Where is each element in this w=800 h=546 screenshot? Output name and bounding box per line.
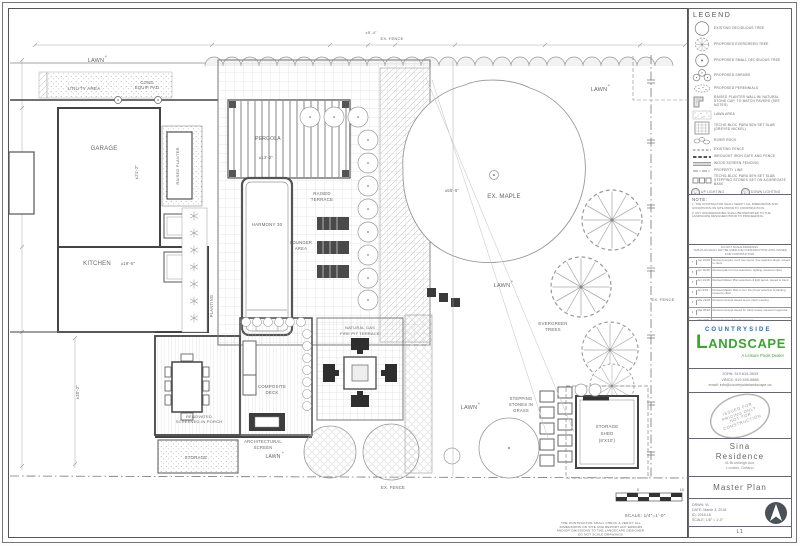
lighting-label: UP LIGHTING — [701, 191, 724, 195]
plan-label: ±13'-2" — [259, 155, 274, 160]
legend-item: WOOD SCREEN FENCING — [691, 161, 789, 167]
planting-bed — [182, 208, 207, 332]
plan-label: ±19'-5" — [121, 261, 136, 266]
legend-title: LEGEND — [693, 12, 789, 19]
plan-label: ±5'-4" — [365, 30, 377, 35]
plan-label: UTILITY AREA — [68, 86, 102, 91]
title-block-panel: LEGEND EXISTING DECIDUOUS TREEPROPOSED E… — [688, 8, 792, 538]
drawing-info-line: SCALE: 1/8" = 1'-0" — [692, 518, 726, 523]
plan-label: ±21'-2" — [134, 165, 139, 180]
light-symbol-icon: U — [691, 188, 700, 195]
plan-label: COMPOSITE — [258, 384, 286, 389]
plan-label: + — [282, 450, 285, 455]
legend-section: LEGEND EXISTING DECIDUOUS TREEPROPOSED E… — [689, 9, 791, 195]
client-address: 41 Bromleigh Ave,London, Ontario — [689, 461, 791, 471]
plan-label: LAWN — [265, 454, 280, 460]
address-line: London, Ontario — [689, 466, 791, 471]
legend-item: PROPOSED SMALL DECIDUOUS TREE — [691, 53, 789, 68]
contact-line: email: info@countrysidelandscape.ca — [689, 383, 791, 389]
plan-label: + — [511, 279, 514, 284]
revision-description: Revised concept issued as per client mee… — [712, 298, 791, 307]
legend-item: WROUGHT IRON GATE AND FENCE — [691, 154, 789, 160]
garage — [58, 108, 160, 247]
revision-row: 5Apr 13/18Revised Master Plan selections… — [689, 278, 791, 288]
legend-item: EXISTING FENCE — [691, 147, 789, 153]
revision-description: Revised plan for tree selections, lighti… — [712, 268, 791, 277]
note-lines: 1. THE CONTRACTOR SHALL VERIFY ALL DIMEN… — [692, 203, 788, 219]
shrubs-icon — [691, 69, 712, 82]
plan-label: 5 — [637, 488, 639, 492]
planter-wall-icon — [691, 95, 712, 109]
revision-date: Mar 20/18 — [697, 308, 712, 317]
site-plan-drawing: LAWN+UTILITY AREACONDEQUIP PADGARAGE±21'… — [8, 8, 688, 538]
note-line: 1. THE CONTRACTOR SHALL VERIFY ALL DIMEN… — [692, 203, 788, 211]
plan-label: STORAGE — [596, 424, 619, 429]
client-name-line2: Residence — [689, 452, 791, 462]
plan-label: RAISED PLANTER — [175, 147, 180, 184]
plan-label: ARCHITECTURAL — [244, 439, 282, 444]
lighting-legend-item: DDOWN LIGHTING — [741, 188, 789, 195]
river-rock-icon — [691, 136, 712, 146]
lighting-legend: UUP LIGHTINGDDOWN LIGHTINGSSTEP LIGHTING… — [691, 188, 789, 195]
revision-date: Mar 21/18 — [697, 298, 712, 307]
legend-items: EXISTING DECIDUOUS TREEPROPOSED EVERGREE… — [691, 21, 789, 186]
revision-date: Jun 20/18 — [697, 258, 712, 267]
plan-label: TERRACE — [311, 197, 333, 202]
plan-label: 10 — [680, 488, 685, 492]
revisions-section: DO NOT SCALE DRAWINGS.THIS PLAN SHALL NO… — [689, 245, 791, 321]
plan-label: EX. FENCE — [652, 297, 675, 302]
plan-label: FIRE PIT TERRACE — [340, 331, 380, 336]
plan-label: SHED — [601, 431, 614, 436]
legend-item: PROPOSED SHRUBS — [691, 69, 789, 82]
drawing-info-section: DRWN: VLDATE: March 3, 2018ID: 2018-18SC… — [689, 499, 791, 527]
contact-section: JOHN: 519 619-3633VINCE: 519 495-5888ema… — [689, 369, 791, 393]
revision-description: Revised concept issued for client review… — [712, 308, 791, 317]
plan-label: LAWN — [591, 87, 608, 93]
legend-item-label: RIVER ROCK — [714, 139, 737, 143]
revision-header: DO NOT SCALE DRAWINGS.THIS PLAN SHALL NO… — [689, 245, 791, 258]
legend-item-label: RAISED PLANTER WALL W/ NATURAL STONE CAP… — [714, 96, 789, 107]
plan-label: AREA — [295, 246, 307, 251]
legend-item: RIVER ROCK — [691, 136, 789, 146]
revision-row: 4Apr 9/18Revised Master Plan to incl. fi… — [689, 288, 791, 298]
plan-label: LAWN — [88, 58, 105, 64]
legend-item-label: PROPOSED PERENNIALS — [714, 87, 758, 91]
plan-label: DECK — [266, 390, 279, 395]
shrub-mass — [304, 426, 356, 478]
line-dashdot-icon — [691, 168, 712, 174]
revision-row: 2Mar 20/18Revised concept issued for cli… — [689, 308, 791, 318]
revision-description: Revised pergola, rev'd tree layout, tree… — [712, 258, 791, 267]
sheet-title: Master Plan — [713, 483, 767, 492]
revision-date: Apr 16/18 — [697, 268, 712, 277]
dining-table — [172, 362, 202, 412]
plan-label: ±30'-2" — [75, 385, 80, 400]
plan-label: GRASS — [513, 408, 529, 413]
revision-header-line: THIS PLAN SHALL NOT BE USED FOR CONSTRUC… — [691, 249, 789, 256]
legend-item-label: TECHO-BLOC PARA 50% SET SLAB STEPPING ST… — [714, 175, 789, 186]
legend-item-label: TECHO-BLOC PARA 50% SET SLAB (GREYED NIC… — [714, 124, 789, 132]
legend-item: TECHO-BLOC PARA 50% SET SLAB (GREYED NIC… — [691, 121, 789, 135]
pool-harmony — [242, 178, 292, 335]
plan-label: LOUNGER — [290, 240, 312, 245]
plan-label: STEPPING — [510, 396, 533, 401]
legend-item: LAWN AREA — [691, 110, 789, 120]
revision-number: 6 — [689, 270, 697, 274]
legend-item-label: PROPOSED SMALL DECIDUOUS TREE — [714, 59, 780, 63]
legend-item-label: PROPOSED EVERGREEN TREE — [714, 43, 769, 47]
legend-item: EXISTING DECIDUOUS TREE — [691, 21, 789, 36]
lighting-label: DOWN LIGHTING — [751, 191, 781, 195]
plan-label: + — [105, 54, 108, 59]
brand-main-text: LANDSCAPE — [696, 333, 791, 352]
approval-stamp: ISSUED FORPRICING ONLYNOT FORCONSTRUCTIO… — [704, 393, 777, 439]
plan-label: + — [478, 401, 481, 406]
contact-lines: JOHN: 519 619-3633VINCE: 519 495-5888ema… — [689, 372, 791, 389]
plan-label: NATURAL GAS — [345, 325, 375, 330]
revision-row: 7Jun 20/18Revised pergola, rev'd tree la… — [689, 258, 791, 268]
stamp-section: ISSUED FORPRICING ONLYNOT FORCONSTRUCTIO… — [689, 393, 791, 439]
plan-label: SCREENED-IN PORCH — [176, 419, 223, 424]
sheet-number-section: L1 — [689, 527, 791, 537]
line-dashed-icon — [691, 147, 712, 153]
revision-description: Revised Master Plan to incl. fire pit pe… — [712, 288, 791, 297]
legend-item: PROPOSED PERENNIALS — [691, 83, 789, 94]
legend-item: RAISED PLANTER WALL W/ NATURAL STONE CAP… — [691, 95, 789, 109]
paver-grid-icon — [691, 121, 712, 135]
plan-label: TREES — [545, 327, 561, 332]
tree-small-deciduous-icon — [691, 53, 712, 68]
plan-label: RAISED — [313, 191, 331, 196]
evergreen-tree — [551, 257, 611, 317]
legend-item-label: PROPERTY LINE — [714, 169, 743, 173]
stepper-squares-icon — [691, 176, 712, 185]
legend-item-label: EXISTING FENCE — [714, 148, 744, 152]
legend-item-label: EXISTING DECIDUOUS TREE — [714, 27, 764, 31]
line-heavy-dash-icon — [691, 154, 712, 160]
plan-label: SCALE: 1/4"=1'-0" — [625, 513, 666, 518]
legend-item-label: WOOD SCREEN FENCING — [714, 162, 759, 166]
north-arrow-logo-icon — [764, 501, 788, 525]
plan-label: STORAGE — [185, 455, 208, 460]
revision-description: Revised Master Plan selections & light l… — [712, 278, 791, 287]
drawing-sheet: LAWN+UTILITY AREACONDEQUIP PADGARAGE±21'… — [0, 0, 800, 546]
revision-number: 2 — [689, 310, 697, 314]
plan-disclaimer-line: DO NOT SCALE DRAWINGS. — [578, 532, 624, 536]
plan-label: PERGOLA — [255, 136, 281, 142]
perennials-icon — [691, 83, 712, 94]
line-double-icon — [691, 161, 712, 167]
revision-row: 3Mar 21/18Revised concept issued as per … — [689, 298, 791, 308]
neighbour-structure — [9, 152, 34, 214]
plan-label: PLANTING — [209, 295, 214, 318]
plan-label: STONES IN — [509, 402, 533, 407]
revision-number: 7 — [689, 260, 697, 264]
light-symbol-icon: D — [741, 188, 750, 195]
revision-number: 5 — [689, 280, 697, 284]
plan-label: GARAGE — [91, 146, 118, 152]
plan-label: EX. FENCE — [381, 36, 404, 41]
sheet-title-section: Master Plan — [689, 477, 791, 499]
tree-deciduous-existing-icon — [691, 21, 712, 36]
sheet-number: L1 — [736, 529, 743, 535]
plan-label: LAWN — [494, 283, 511, 289]
drawing-info-lines: DRWN: VLDATE: March 3, 2018ID: 2018-18SC… — [692, 503, 726, 524]
legend-item-label: WROUGHT IRON GATE AND FENCE — [714, 155, 775, 159]
legend-item: PROPOSED EVERGREEN TREE — [691, 37, 789, 52]
stamp-text: ISSUED FORPRICING ONLYNOT FORCONSTRUCTIO… — [718, 401, 762, 432]
legend-item-label: LAWN AREA — [714, 113, 735, 117]
revision-table: 7Jun 20/18Revised pergola, rev'd tree la… — [689, 258, 791, 321]
plan-label: EX. MAPLE — [487, 194, 520, 200]
revision-row: 6Apr 16/18Revised plan for tree selectio… — [689, 268, 791, 278]
evergreen-tree — [582, 190, 642, 250]
shrub-mass — [363, 424, 419, 480]
note-line: 2. ANY DISCREPANCIES SHALL BE REPORTED T… — [692, 212, 788, 220]
plan-label: LAWN — [461, 405, 478, 411]
legend-item-label: PROPOSED SHRUBS — [714, 74, 750, 78]
brand-tagline: A Leisure Pools Dealer — [689, 353, 784, 358]
lounge-chairs — [317, 217, 349, 278]
plan-label: (8'X10') — [599, 438, 616, 443]
revision-date: Apr 13/18 — [697, 278, 712, 287]
scale-bar — [616, 493, 682, 501]
stipple-icon — [691, 110, 712, 120]
plan-label: EVERGREEN — [538, 321, 567, 326]
plan-label: + — [608, 83, 611, 88]
notes-section: NOTE: 1. THE CONTRACTOR SHALL VERIFY ALL… — [689, 195, 791, 245]
revision-date: Apr 9/18 — [697, 288, 712, 297]
tree-evergreen-icon — [691, 37, 712, 52]
plan-label: KITCHEN — [83, 261, 111, 267]
plan-label: EX. FENCE — [381, 485, 405, 490]
plan-label: SCREEN — [254, 445, 273, 450]
client-name-line1: Sina — [689, 442, 791, 452]
legend-item: TECHO-BLOC PARA 50% SET SLAB STEPPING ST… — [691, 175, 789, 186]
plan-label: EQUIP PAD — [135, 85, 159, 90]
plan-label: ±55'-5" — [445, 188, 460, 193]
client-section: Sina Residence 41 Bromleigh Ave,London, … — [689, 439, 791, 477]
lighting-legend-item: UUP LIGHTING — [691, 188, 739, 195]
company-logo: COUNTRYSIDE LANDSCAPE A Leisure Pools De… — [689, 321, 791, 369]
revision-number: 3 — [689, 300, 697, 304]
plan-label: HARMONY 30 — [252, 222, 283, 227]
revision-number: 4 — [689, 290, 697, 294]
